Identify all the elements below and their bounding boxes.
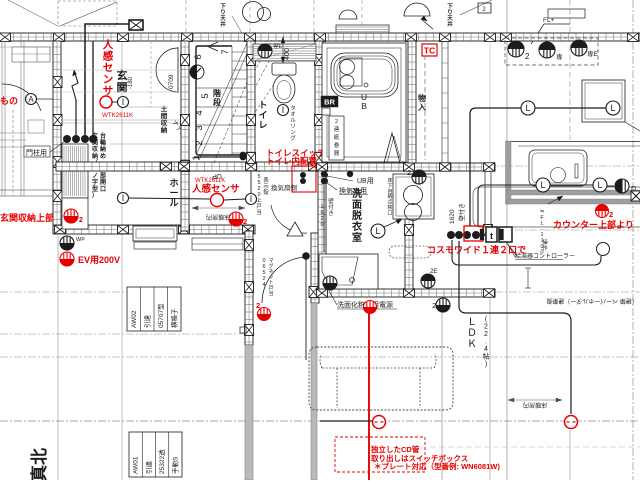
svg-text:トイレ: トイレ [258, 100, 267, 130]
svg-text:UB用: UB用 [357, 177, 374, 185]
svg-text:-180: -180 [128, 76, 134, 89]
svg-text:＊プレート対応（型番例: WN6081W): ＊プレート対応（型番例: WN6081W) [374, 461, 500, 471]
svg-text:06524: 06524 [262, 258, 265, 288]
svg-text:t: t [490, 231, 493, 241]
svg-text:1: 1 [191, 155, 202, 160]
svg-text:門柱用: 門柱用 [26, 148, 47, 157]
svg-text:TC: TC [424, 46, 435, 56]
svg-text:WP: WP [76, 237, 85, 243]
svg-text:I: I [282, 105, 285, 115]
svg-text:0709: 0709 [168, 74, 175, 89]
svg-text:専: 専 [556, 52, 563, 61]
svg-text:WTK2611K: WTK2611K [102, 112, 134, 119]
svg-text:玄関収納上部: 玄関収納上部 [0, 212, 54, 223]
svg-text:洗面脱衣室: 洗面脱衣室 [352, 187, 362, 244]
svg-text:AW01: AW01 [133, 456, 140, 474]
svg-text:床下自納点検口: 床下自納点検口 [387, 177, 392, 216]
svg-text:専E: 専E [273, 42, 283, 50]
svg-text:AW02: AW02 [131, 310, 138, 328]
svg-text:2: 2 [194, 140, 205, 145]
svg-text:L: L [597, 180, 602, 190]
svg-text:2: 2 [432, 301, 436, 310]
svg-text:L: L [375, 226, 380, 236]
svg-text:2: 2 [407, 168, 411, 177]
svg-text:2: 2 [79, 217, 83, 224]
svg-text:独立したCD管: 独立したCD管 [371, 444, 420, 454]
svg-text:2: 2 [609, 210, 613, 219]
svg-text:5: 5 [200, 93, 211, 98]
svg-text:I: I [250, 194, 253, 204]
svg-text:引違: 引違 [144, 461, 153, 475]
svg-text:2: 2 [525, 52, 530, 61]
svg-text:400: 400 [284, 48, 291, 60]
svg-text:BR: BR [324, 98, 335, 107]
svg-text:05707型: 05707型 [156, 303, 165, 328]
svg-text:1620: 1620 [320, 204, 323, 228]
svg-text:2: 2 [243, 217, 247, 226]
svg-text:カウンター上部より: カウンター上部より [553, 219, 634, 230]
svg-text:換気扇用: 換気扇用 [339, 186, 367, 195]
svg-text:2E: 2E [430, 269, 437, 275]
svg-text:UP: UP [212, 172, 222, 179]
svg-text:ＬＤＫ: ＬＤＫ [467, 317, 477, 350]
svg-text:ホール: ホール [169, 178, 178, 208]
svg-text:7: 7 [220, 49, 231, 54]
svg-text:壁付き: 壁付き [458, 203, 466, 221]
svg-text:タオルリング: タオルリング [290, 104, 296, 142]
svg-text:表示錠: 表示錠 [263, 176, 269, 196]
svg-text:A: A [28, 95, 34, 104]
svg-text:EV用200V: EV用200V [78, 255, 120, 265]
svg-text:壁付き: 壁付き [328, 197, 334, 217]
svg-text:物入: 物入 [417, 93, 426, 112]
svg-text:床暖房内: 床暖房内 [206, 213, 230, 221]
svg-text:4: 4 [194, 110, 205, 115]
svg-text:2: 2 [256, 301, 260, 310]
svg-text:専E: 専E [587, 49, 599, 58]
svg-text:L: L [610, 103, 615, 113]
svg-text:L: L [540, 180, 545, 190]
svg-text:下り天井: 下り天井 [447, 3, 453, 28]
svg-text:玄関: 玄関 [117, 68, 128, 94]
svg-text:25322透: 25322透 [158, 449, 166, 474]
svg-text:FL+: FL+ [543, 17, 555, 24]
svg-text:換気扇側: 換気扇側 [271, 183, 298, 192]
svg-text:引違: 引違 [142, 315, 151, 329]
svg-text:1620: 1620 [449, 209, 456, 224]
svg-text:床暖房内: 床暖房内 [523, 401, 547, 409]
svg-text:手動S: 手動S [170, 456, 179, 474]
svg-text:階段: 階段 [213, 88, 221, 107]
svg-text:ＵＢ: ＵＢ [360, 93, 368, 111]
svg-text:真北: 真北 [29, 448, 49, 480]
svg-text:土間収納: 土間収納 [161, 104, 168, 134]
svg-text:トイレ内配置: トイレ内配置 [266, 156, 318, 166]
svg-text:I: I [122, 97, 125, 107]
svg-text:人感センサ: 人感センサ [103, 38, 114, 97]
svg-text:コスモワイド１連２口で: コスモワイド１連２口で [427, 244, 526, 255]
svg-text:3: 3 [194, 125, 205, 130]
svg-text:6: 6 [193, 54, 204, 59]
svg-text:操作: 操作 [542, 238, 548, 252]
svg-text:I: I [122, 193, 125, 203]
svg-text:L: L [525, 103, 530, 113]
svg-text:横格子: 横格子 [169, 308, 178, 328]
svg-text:下り天井: 下り天井 [220, 3, 226, 28]
svg-text:もの: もの [0, 96, 18, 106]
svg-text:（建築 ペーパーホルダー）建築扱: （建築 ペーパーホルダー）建築扱 [546, 297, 638, 305]
